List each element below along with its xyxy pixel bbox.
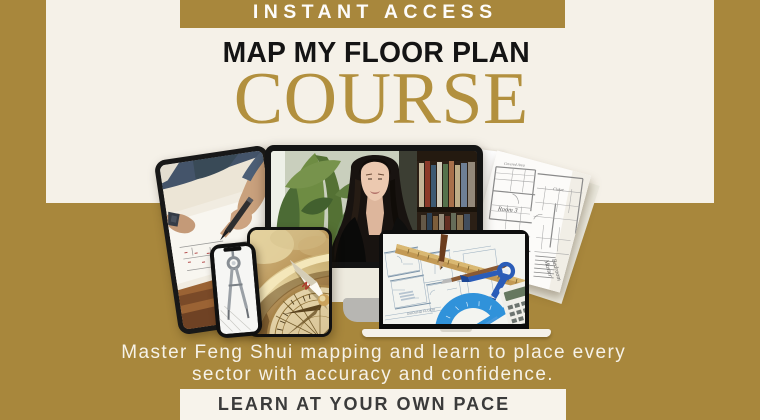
- svg-text:Closet: Closet: [553, 186, 565, 192]
